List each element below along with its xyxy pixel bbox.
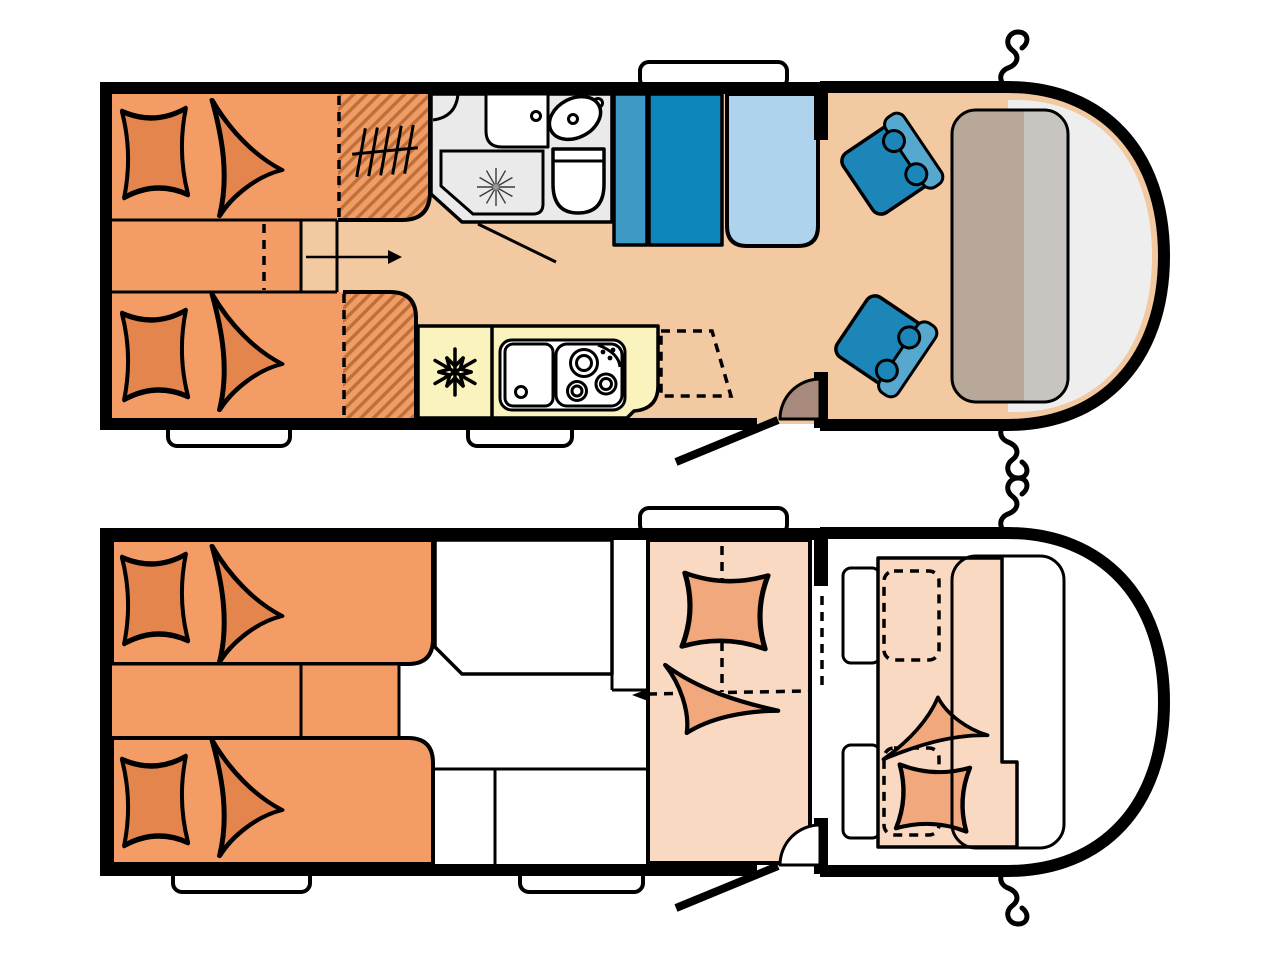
bed-middle-section xyxy=(112,220,301,292)
day-floorplan xyxy=(106,32,1164,478)
pillow xyxy=(122,310,188,399)
bathroom-outline xyxy=(435,540,612,674)
drainer-dot xyxy=(608,356,613,361)
basin-drain xyxy=(569,115,578,124)
seat-base xyxy=(843,568,880,663)
rear-beds-night xyxy=(112,540,433,864)
seat-base xyxy=(843,745,880,838)
sink xyxy=(505,344,553,406)
drop-down-bed xyxy=(632,540,822,863)
tall-cabinet xyxy=(614,94,647,245)
drainer-dot xyxy=(601,350,606,355)
side-mirror-icon xyxy=(1001,478,1027,534)
floorplan-image xyxy=(0,0,1280,960)
bed-middle-section xyxy=(112,664,399,738)
tap xyxy=(532,112,541,121)
rear-bedroom xyxy=(112,94,430,418)
side-mirror-icon xyxy=(1001,32,1027,88)
floorplan-page xyxy=(0,0,1280,960)
night-floorplan xyxy=(106,478,1164,924)
wall-stub xyxy=(814,528,828,586)
pillow xyxy=(122,756,188,845)
windscreen-glass xyxy=(1024,110,1068,402)
pillow xyxy=(122,108,188,197)
pillow xyxy=(896,764,970,831)
wardrobe-cabinet xyxy=(649,94,722,245)
wardrobe-bottom xyxy=(343,292,416,418)
pillow xyxy=(682,573,768,649)
drainer-dot xyxy=(611,348,616,353)
wall-stub xyxy=(814,82,828,140)
dinette-bench xyxy=(727,94,818,246)
pillow xyxy=(122,554,188,643)
toilet xyxy=(553,149,604,213)
cab-area xyxy=(820,87,1164,425)
